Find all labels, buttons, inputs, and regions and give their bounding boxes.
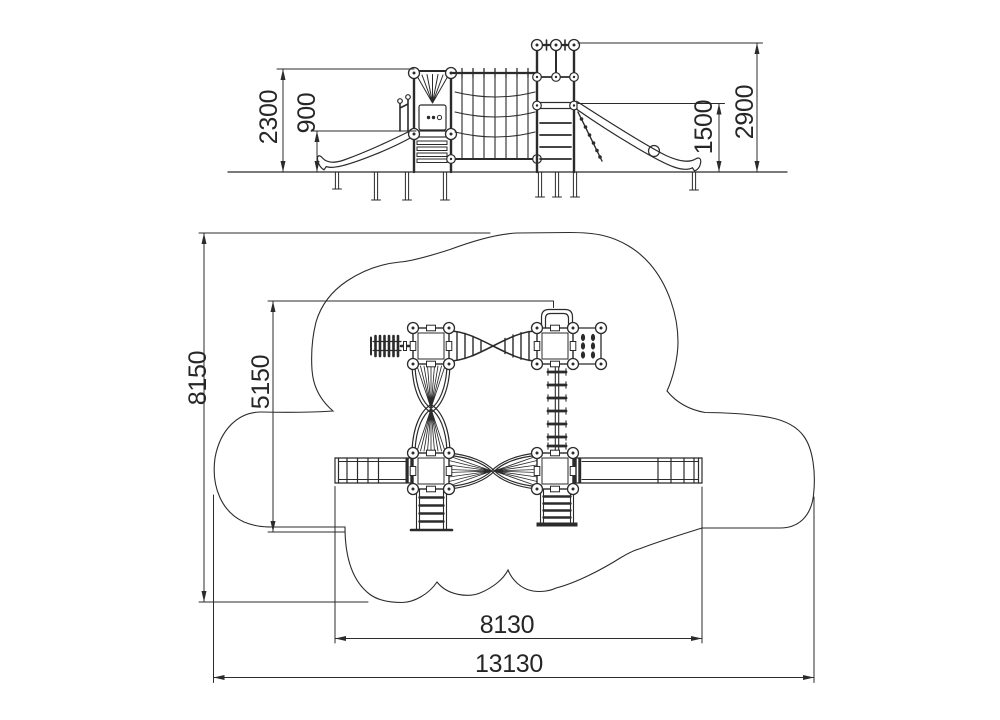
drawing-sheet: 2300 900 1500 2900 [0,0,1000,720]
access-ladder-left [411,489,452,530]
platform-upper-left [408,323,455,370]
monkey-rungs [371,336,411,356]
fan-guard [417,75,448,104]
left-slide [318,130,412,170]
platform-upper-right [532,323,579,370]
dim-label-8130: 8130 [480,611,534,639]
dim-label-1500: 1500 [690,100,718,154]
footings [333,172,699,200]
platform-lower-left [408,448,455,495]
dim-label-5150: 5150 [247,355,275,409]
plan-view: 8150 5150 8130 13130 [184,233,814,683]
platform-lower-right [532,448,579,495]
bridge-net-top [449,331,537,361]
hourglass-net [412,366,450,451]
slide-right-plan [573,458,702,483]
dim-label-13130: 13130 [475,650,543,678]
dim-label-8150: 8150 [184,351,212,405]
dim-label-2900: 2900 [731,85,759,139]
right-tower [532,40,603,173]
climbing-net [447,69,542,164]
rope-ladder [548,364,566,453]
elevation-view: 2300 900 1500 2900 [228,40,787,201]
slide-left-plan [335,458,413,483]
slide-entry-rail [400,99,408,131]
dim-extension-8150 [199,233,490,602]
safety-area-outline [214,233,814,603]
dim-label-2300: 2300 [255,90,283,144]
technical-drawing: 2300 900 1500 2900 [0,0,1000,720]
tower-ladder [540,123,571,159]
right-slide [577,102,701,172]
bridge-net-bottom [449,453,537,489]
dim-label-900: 900 [293,93,321,134]
dim-extension-5150 [268,301,554,532]
